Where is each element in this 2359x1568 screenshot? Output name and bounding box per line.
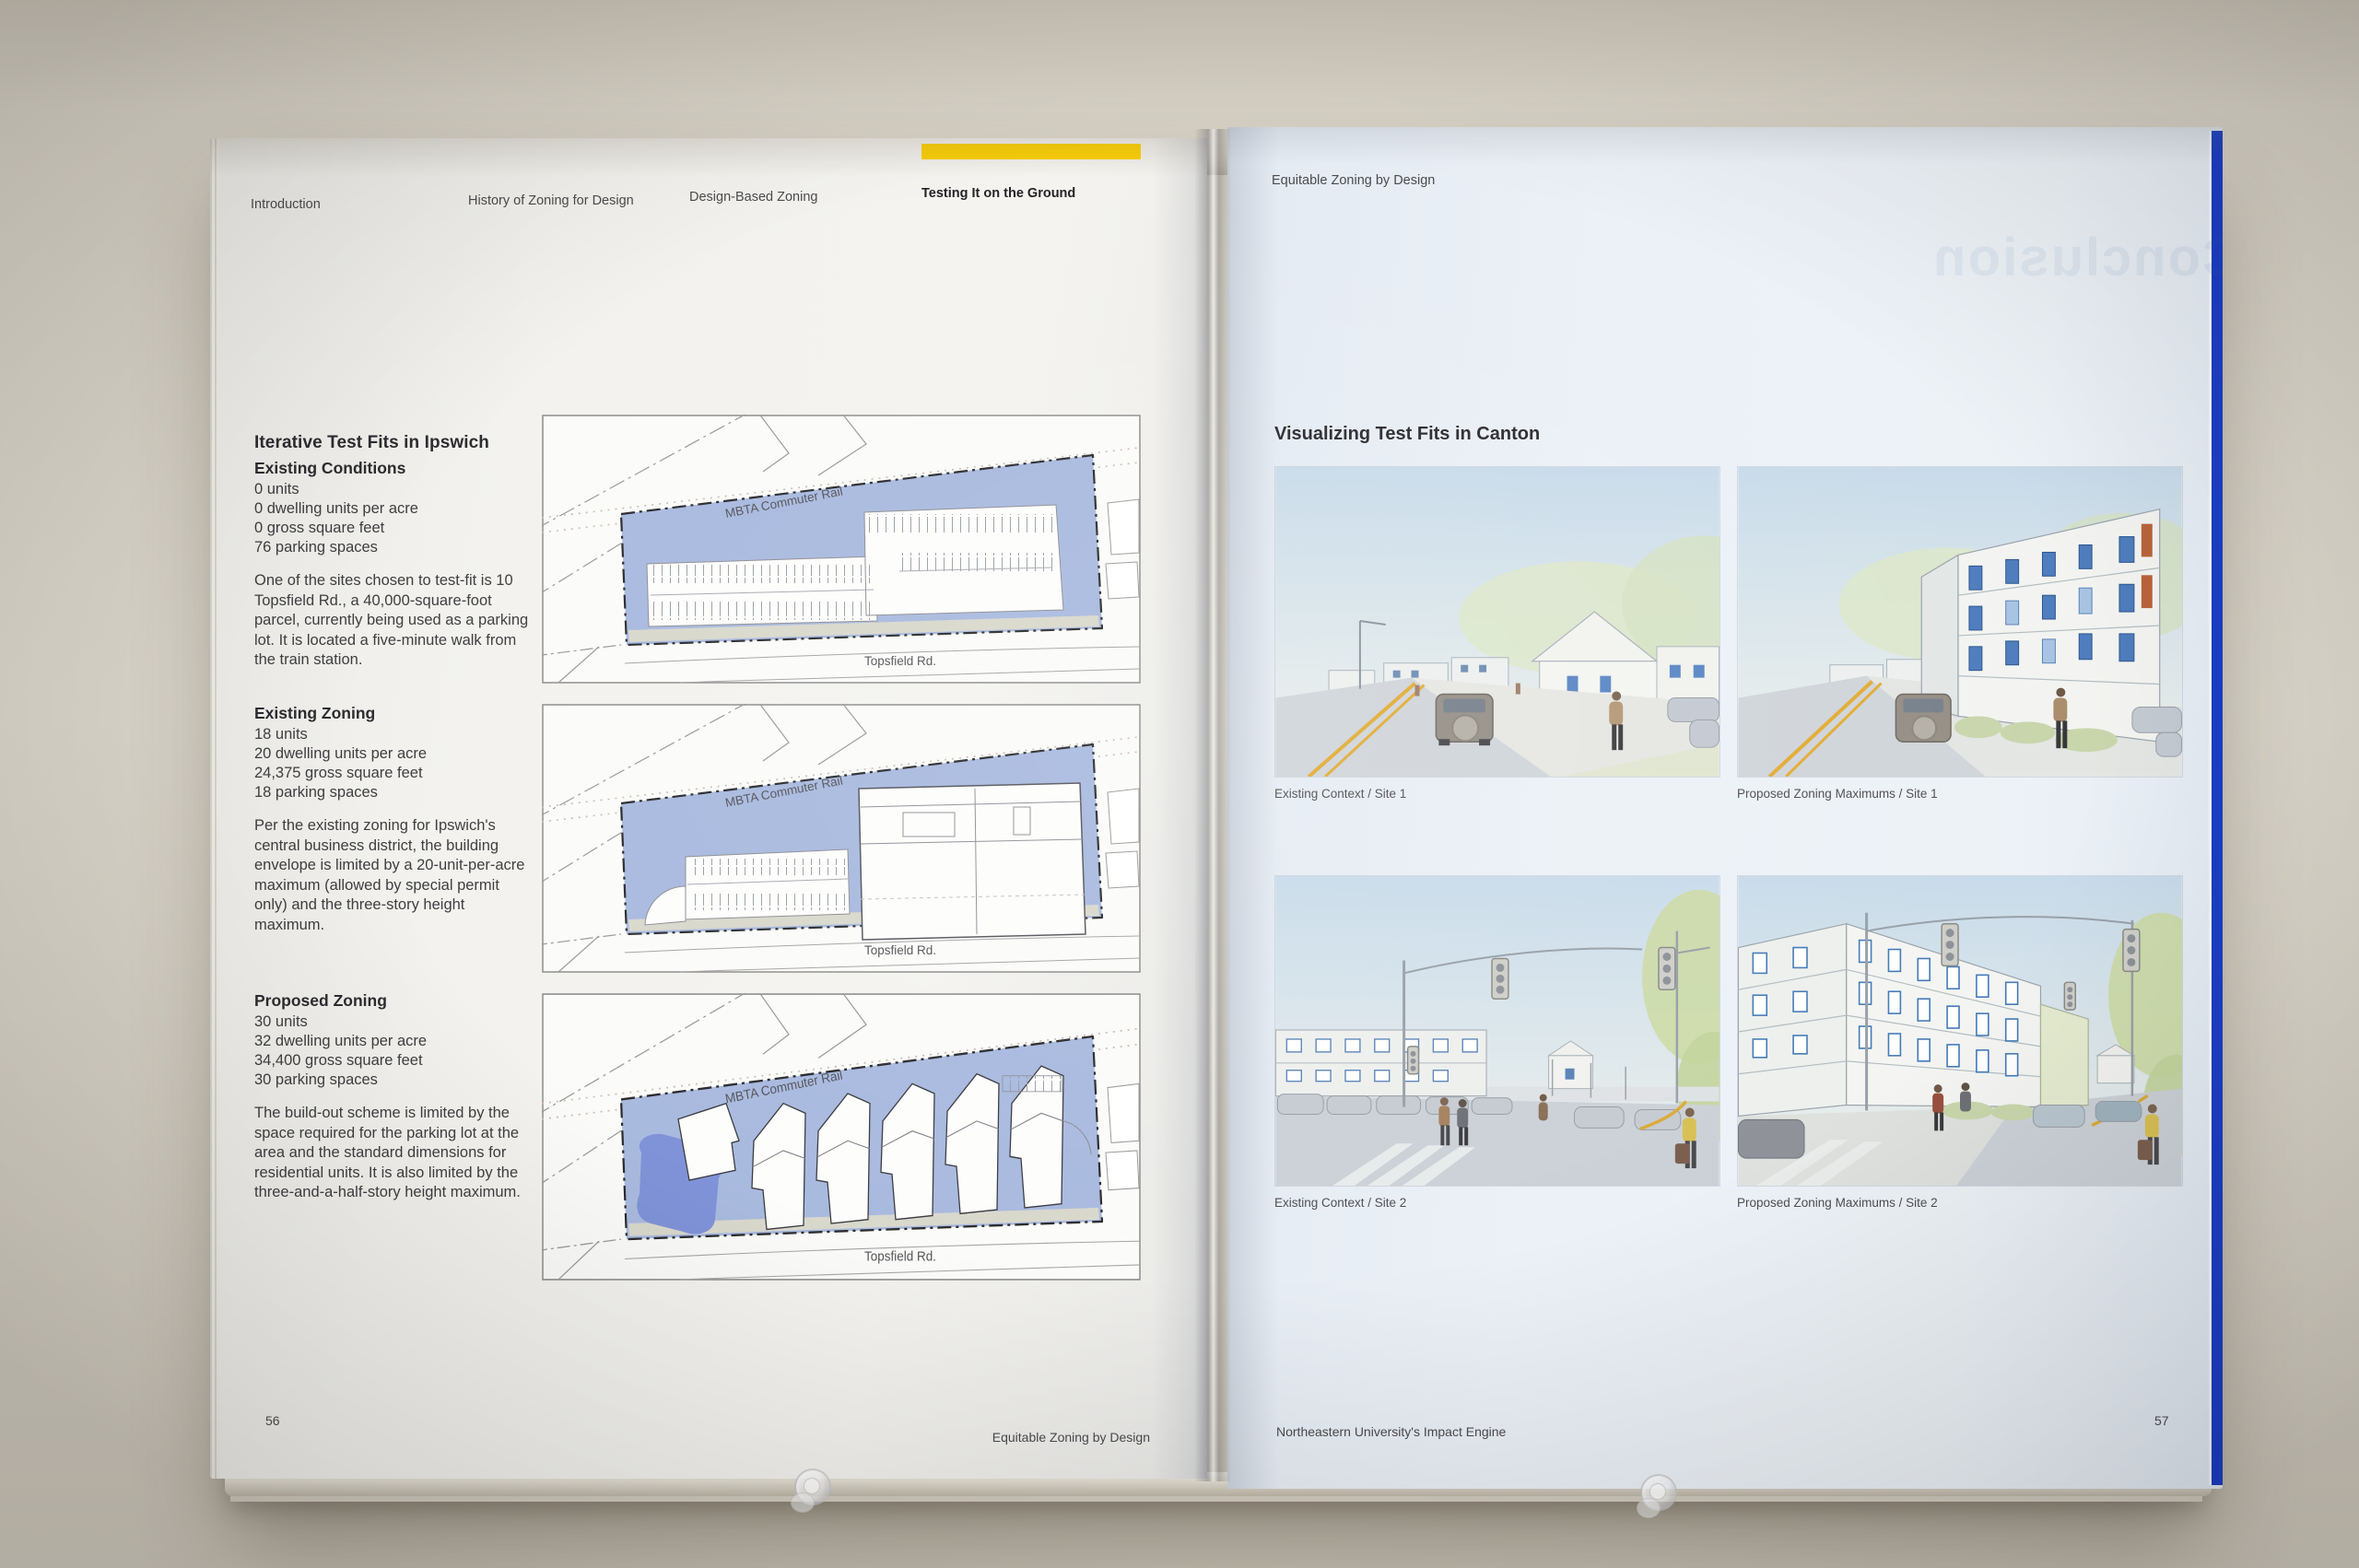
figure-existing-context-site2: Existing Context / Site 2	[1274, 875, 1720, 1187]
site-plan-proposed-zoning: MBTA Commuter Rail Topsfield Rd.	[542, 993, 1141, 1285]
stat-line: 0 gross square feet	[254, 519, 533, 538]
page-holder-clip-left	[791, 1469, 835, 1518]
figure-existing-context-site1: Existing Context / Site 1	[1274, 466, 1720, 778]
diagram-road-label: Topsfield Rd.	[864, 943, 936, 957]
stat-line: 24,375 gross square feet	[254, 764, 533, 783]
nav-item-introduction: Introduction	[251, 197, 321, 212]
page-number-left: 56	[265, 1413, 280, 1428]
stat-line: 30 units	[254, 1012, 533, 1032]
book-gutter-shadow	[1194, 129, 1231, 1481]
page-shading	[1227, 127, 2223, 1489]
stat-line: 30 parking spaces	[254, 1071, 533, 1090]
diagram-road-label: Topsfield Rd.	[864, 1248, 936, 1264]
diagram-road-label: Topsfield Rd.	[864, 654, 936, 668]
figure-proposed-maximums-site2: Proposed Zoning Maximums / Site 2	[1737, 875, 2183, 1187]
stat-line: 32 dwelling units per acre	[254, 1032, 533, 1051]
stat-line: 76 parking spaces	[254, 538, 533, 557]
figure-caption: Proposed Zoning Maximums / Site 2	[1737, 1196, 1938, 1210]
running-title-left: Equitable Zoning by Design	[992, 1430, 1150, 1445]
page-holder-clip-right	[1637, 1474, 1681, 1524]
section-body: One of the sites chosen to test-fit is 1…	[254, 571, 533, 671]
page-right: Equitable Zoning by Design Conclusion Vi…	[1227, 127, 2223, 1489]
section-existing-conditions: Existing Conditions 0 units 0 dwelling u…	[254, 459, 533, 671]
nav-item-testing: Testing It on the Ground	[921, 186, 1075, 201]
stat-line: 0 units	[254, 480, 533, 499]
nav-item-design-based: Design-Based Zoning	[689, 190, 817, 205]
running-header-right: Equitable Zoning by Design	[1272, 173, 1435, 188]
stat-line: 18 units	[254, 725, 533, 744]
page-number-right: 57	[2154, 1413, 2169, 1428]
figure-caption: Proposed Zoning Maximums / Site 1	[1737, 787, 1938, 801]
running-title-right: Northeastern University's Impact Engine	[1276, 1424, 1506, 1439]
stat-line: 18 parking spaces	[254, 783, 533, 802]
section-heading: Existing Conditions	[254, 459, 533, 478]
stat-line: 34,400 gross square feet	[254, 1051, 533, 1071]
right-page-title: Visualizing Test Fits in Canton	[1274, 424, 1540, 445]
section-body: The build-out scheme is limited by the s…	[254, 1104, 533, 1203]
stat-line: 0 dwelling units per acre	[254, 499, 533, 519]
ghost-showthrough-text: Conclusion	[1817, 227, 2223, 288]
section-existing-zoning: Existing Zoning 18 units 20 dwelling uni…	[254, 704, 533, 935]
section-proposed-zoning: Proposed Zoning 30 units 32 dwelling uni…	[254, 991, 533, 1203]
site-plan-existing-zoning: MBTA Commuter Rail Topsfield Rd.	[542, 704, 1141, 977]
section-heading: Existing Zoning	[254, 704, 533, 723]
article-title: Iterative Test Fits in Ipswich	[254, 433, 533, 453]
section-body: Per the existing zoning for Ipswich's ce…	[254, 816, 533, 935]
page-left: Introduction History of Zoning for Desig…	[210, 138, 1207, 1479]
section-heading: Proposed Zoning	[254, 991, 533, 1011]
article-title-wrap: Iterative Test Fits in Ipswich	[254, 433, 533, 453]
figure-caption: Existing Context / Site 1	[1274, 787, 1406, 801]
figure-proposed-maximums-site1: Proposed Zoning Maximums / Site 1	[1737, 466, 2183, 778]
nav-highlight-bar	[921, 144, 1141, 159]
stat-line: 20 dwelling units per acre	[254, 744, 533, 764]
site-plan-existing-conditions: MBTA Commuter Rail Topsfield Rd.	[542, 415, 1141, 688]
nav-item-history: History of Zoning for Design	[468, 193, 634, 208]
figure-caption: Existing Context / Site 2	[1274, 1196, 1406, 1210]
